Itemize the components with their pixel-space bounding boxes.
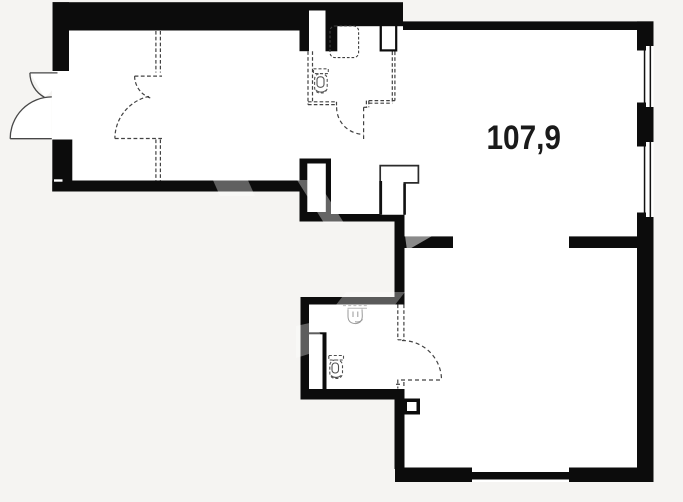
svg-text:107,9: 107,9 (487, 119, 562, 157)
